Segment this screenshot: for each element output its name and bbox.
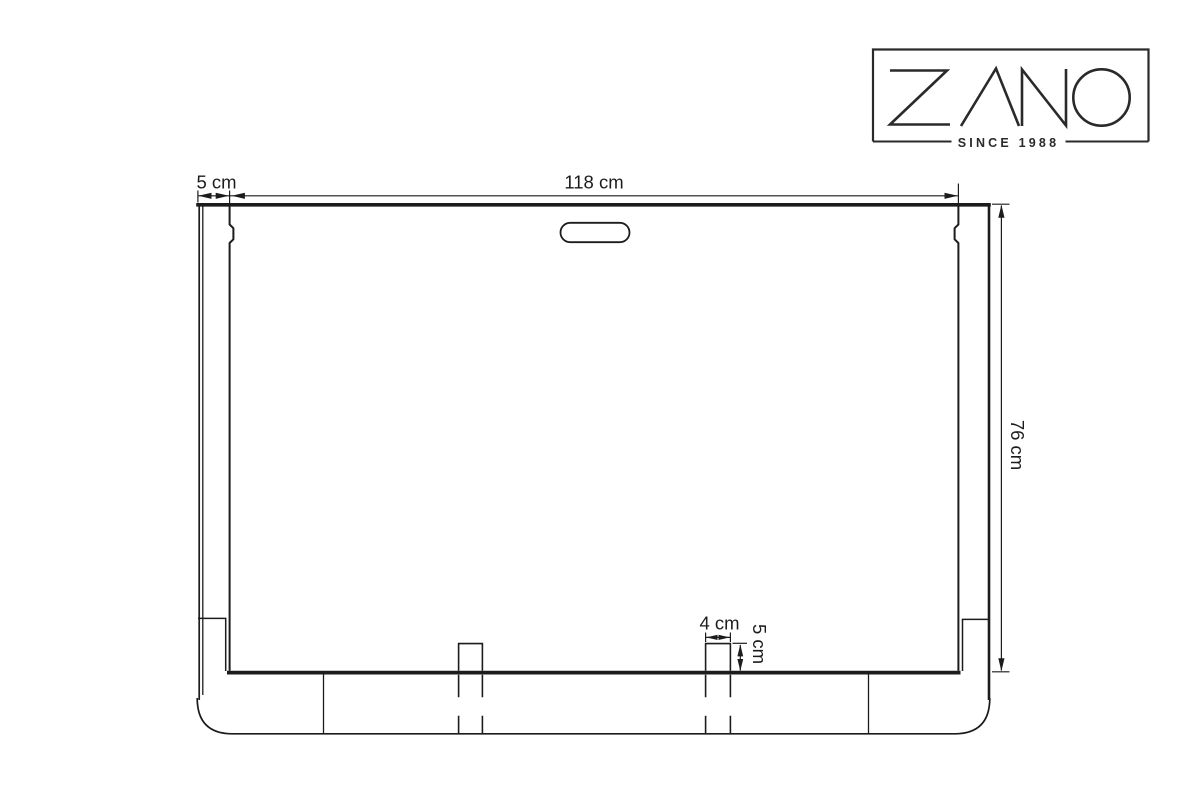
technical-drawing-canvas: SINCE 1988 xyxy=(0,0,1200,800)
arrowhead-wall-left xyxy=(198,193,211,199)
logo-letter-z xyxy=(890,71,950,125)
logo-frame xyxy=(873,50,1149,142)
arrowhead-height-top xyxy=(998,205,1004,218)
brand-logo: SINCE 1988 xyxy=(873,50,1149,151)
arrowhead-tab-height-bottom xyxy=(737,659,743,671)
dimension-label-inner-width: 118 cm xyxy=(564,172,623,193)
dimension-label-height: 76 cm xyxy=(1007,420,1028,470)
mounting-tab-right xyxy=(706,644,731,735)
arrowhead-tab-width-left xyxy=(706,635,717,640)
logo-tagline: SINCE 1988 xyxy=(958,136,1059,150)
arrowhead-height-bottom xyxy=(998,658,1004,671)
dimension-label-tab-height: 5 cm xyxy=(749,624,770,664)
logo-letter-a xyxy=(961,69,1019,127)
arrowhead-width-right xyxy=(945,193,958,199)
logo-letter-n xyxy=(1022,69,1066,126)
tab-right-outline xyxy=(706,644,731,671)
logo-logotype xyxy=(890,69,1130,127)
tab-left-outline xyxy=(459,644,483,671)
arrowhead-tab-height-top xyxy=(737,644,743,656)
arrowhead-wall-right xyxy=(216,193,229,199)
dimension-side-wall-and-width: 5 cm 118 cm xyxy=(196,172,958,205)
arrowhead-tab-width-right xyxy=(719,635,730,640)
handle-slot xyxy=(561,223,630,242)
panel-left-fold-line xyxy=(230,205,234,671)
product-outline xyxy=(196,203,991,734)
inner-panel xyxy=(198,205,989,733)
mounting-tab-left xyxy=(459,644,483,735)
logo-letter-o xyxy=(1073,69,1129,125)
dimension-label-side-wall: 5 cm xyxy=(196,172,236,193)
panel-right-fold-line xyxy=(955,205,959,671)
outline-rounded-bottom xyxy=(197,698,990,734)
arrowhead-width-left xyxy=(232,193,245,199)
dimension-label-tab-width: 4 cm xyxy=(699,613,739,634)
dimension-height: 76 cm xyxy=(992,204,1028,672)
dimension-tab-width: 4 cm xyxy=(699,613,739,643)
dimension-drawing: SINCE 1988 xyxy=(0,0,1200,800)
